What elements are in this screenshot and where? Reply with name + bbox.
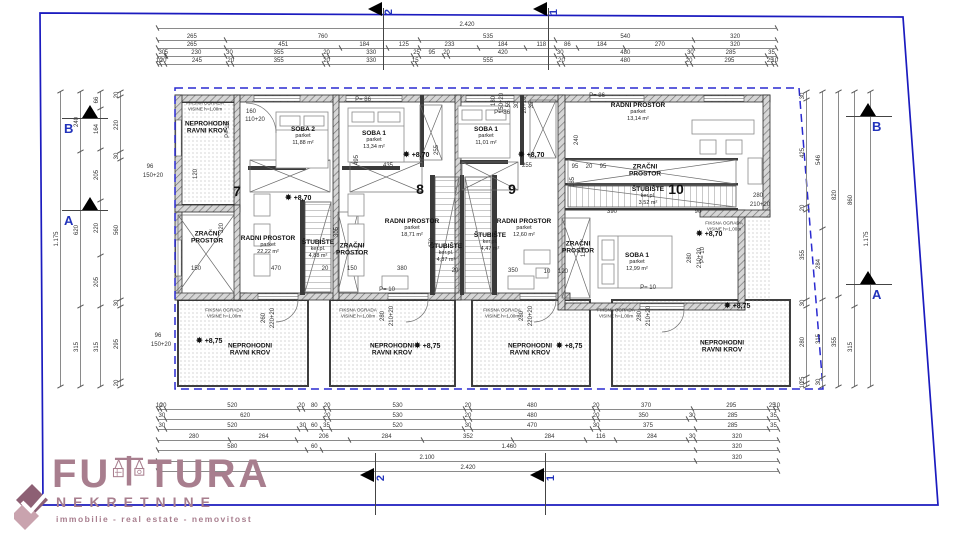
dim-segment: 264 (230, 432, 298, 440)
dim-segment: 95 (420, 48, 444, 56)
dim-segment: 320 (696, 453, 778, 461)
dim-chain-vertical: 54628431530 (822, 92, 831, 386)
dim-label: 355 (274, 58, 284, 64)
room-name: PROSTOR (562, 248, 594, 255)
annotation: 255 (522, 163, 532, 169)
dim-segment: 295 (121, 307, 129, 381)
dim-label: 30 (800, 92, 806, 99)
dim-label: 35 (770, 413, 777, 419)
dim-label: 270 (655, 42, 665, 48)
elevation-mark: ✸+8,75 (556, 341, 582, 350)
dim-segment: 355 (233, 48, 324, 56)
elevation-value: +8,75 (423, 343, 441, 350)
fence-note: FIKSNA OGRADAVISINE h=1,00m (597, 308, 635, 319)
annotation: 210+20 (389, 306, 395, 326)
dim-label: 315 (94, 342, 100, 352)
dim-label: 285 (726, 50, 736, 56)
dim-segment: 20 (121, 381, 129, 386)
section-number: 2 (383, 9, 395, 15)
elevation-value: +8,70 (705, 231, 723, 238)
dim-segment: 285 (696, 411, 769, 419)
annotation: 95 (600, 164, 607, 170)
annotation: P= 86 (494, 110, 510, 116)
dim-label: 60 (311, 423, 318, 429)
dim-segment: 355 (839, 297, 847, 386)
elevation-mark: ✸+8,75 (196, 336, 222, 345)
room-name: NEPROHODNI (370, 343, 414, 350)
annotation: 280 (687, 253, 693, 263)
dim-label: 425 (800, 148, 806, 158)
annotation: 255 (434, 145, 440, 155)
annotation: 20 (586, 164, 593, 170)
dim-segment: 220 (121, 97, 129, 152)
dim-label: 295 (726, 403, 736, 409)
dim-label: 206 (319, 434, 329, 440)
dim-label: 2.100 (419, 455, 434, 461)
dim-segment: 480 (564, 48, 687, 56)
elevation-mark: ✸+8,75 (724, 301, 750, 310)
dim-segment: 315 (101, 307, 109, 386)
dim-label: 370 (641, 403, 651, 409)
room-label: SOBA 2parket11,88 m² (291, 126, 315, 146)
room-label: RADNI PROSTORparket12,60 m² (497, 218, 551, 238)
dim-segment: 285 (694, 48, 767, 56)
elevation-mark: ✸+8,70 (285, 193, 311, 202)
room-detail: 22,22 m² (241, 249, 295, 255)
dim-segment: 125 (388, 40, 420, 48)
dim-segment: 205 (101, 150, 109, 201)
annotation: 180 (491, 96, 497, 106)
dim-segment: 370 (599, 401, 694, 409)
room-detail: 3,52 m² (632, 200, 664, 206)
annotation: 470 (429, 238, 435, 248)
section-line (375, 453, 376, 515)
dim-segment: 116 (586, 432, 616, 440)
dim-segment: 265 (158, 32, 226, 40)
room-name: ŠTUBIŠTE (302, 239, 334, 246)
dim-segment: 265 (158, 40, 226, 48)
dim-label: 2.420 (459, 22, 474, 28)
room-name: ŠTUBIŠTE (632, 186, 664, 193)
letter-marker-arrow-icon (82, 197, 98, 210)
annotation: P= 10 (640, 285, 656, 291)
dim-label: 480 (527, 413, 537, 419)
annotation: 160 (246, 109, 256, 115)
room-name: PROSTOR (336, 250, 368, 257)
dim-label: 352 (463, 434, 473, 440)
room-detail: 13,14 m² (611, 116, 665, 122)
dim-segment: 164 (101, 109, 109, 150)
room-label: NEPROHODNIRAVNI KROV (370, 343, 414, 358)
dim-segment: 451 (226, 40, 341, 48)
room-label: NEPROHODNIRAVNI KROV (185, 121, 229, 136)
dim-label: 184 (359, 42, 369, 48)
dim-label: 560 (114, 225, 120, 235)
annotation: 280 (519, 311, 525, 321)
unit-number: 7 (233, 183, 241, 199)
elevation-star-icon: ✸ (403, 150, 410, 159)
fence-note-line: FIKSNA OGRADA (597, 308, 635, 314)
dim-label: 284 (647, 434, 657, 440)
dim-chain-horizontal: 28026420628435228411628430320 (158, 432, 778, 441)
room-detail: 12,99 m² (625, 266, 649, 272)
dim-label: 265 (187, 42, 197, 48)
dim-segment: 560 (121, 160, 129, 300)
fence-note-line: VISINE h=1,00m (483, 313, 521, 319)
annotation: 30 (514, 102, 520, 109)
dim-label: 295 (724, 58, 734, 64)
dim-label: 30 (114, 152, 120, 159)
room-label: NEPROHODNIRAVNI KROV (508, 343, 552, 358)
letter-marker-line (62, 118, 108, 119)
dim-label: 20 (114, 380, 120, 387)
terrace-upper-left (178, 102, 238, 205)
annotation: 10 (544, 269, 551, 275)
dim-segment: 295 (693, 401, 769, 409)
dim-label: 350 (638, 413, 648, 419)
room-name: ZRAČNI (336, 243, 368, 250)
elevation-star-icon: ✸ (414, 341, 421, 350)
dim-label: 315 (816, 334, 822, 344)
dim-chain-horizontal: 102052020802053020480203702952510 (158, 401, 778, 410)
dim-segment: 35 (767, 48, 776, 56)
annotation: 150+20 (151, 342, 171, 348)
elevation-star-icon: ✸ (696, 229, 703, 238)
dim-segment: 280 (158, 432, 230, 440)
dim-label: 530 (393, 403, 403, 409)
dim-label: 520 (393, 423, 403, 429)
fence-note: FIKSNA OGRADAVISINE h=1,00m (186, 101, 224, 112)
annotation: 35 (529, 102, 535, 109)
room-name: RAVNI KROV (185, 128, 229, 135)
dim-label: 118 (537, 42, 547, 48)
dim-label: 184 (597, 42, 607, 48)
dim-segment: 352 (423, 432, 513, 440)
dim-segment: 820 (839, 92, 847, 297)
annotation: P= 10 (700, 247, 706, 263)
dim-segment: 350 (599, 411, 689, 419)
dim-label: 233 (444, 42, 454, 48)
dim-label: 320 (730, 34, 740, 40)
dim-label: 60 (311, 444, 318, 450)
section-number: 1 (545, 475, 557, 481)
annotation: 240 (574, 135, 580, 145)
room-name: RADNI PROSTOR (611, 102, 665, 109)
dim-chain-vertical: 20220305603029520 (120, 92, 129, 386)
dim-label: 245 (192, 58, 202, 64)
annotation: 150+20 (143, 173, 163, 179)
annotation: 55 (506, 101, 512, 108)
dim-label: 184 (498, 42, 508, 48)
dim-segment: 320 (694, 32, 776, 40)
room-name: NEPROHODNI (508, 343, 552, 350)
room-name: ZRAČNI (629, 164, 661, 171)
dim-segment: 535 (420, 32, 557, 40)
dim-label: 205 (94, 170, 100, 180)
dim-label: 125 (399, 42, 409, 48)
section-arrow-icon (360, 468, 374, 482)
annotation: P= 10 (225, 122, 231, 138)
annotation: 220+20 (528, 306, 534, 326)
room-name: NEPROHODNI (700, 340, 744, 347)
dim-segment: 205 (101, 256, 109, 307)
room-detail: 12,60 m² (497, 232, 551, 238)
fence-note-line: VISINE h=1,00m (597, 313, 635, 319)
annotation: 210+20 (646, 306, 652, 326)
elevation-mark: ✸+8,70 (518, 150, 544, 159)
section-arrow-icon (530, 468, 544, 482)
dim-segment: 355 (233, 56, 324, 64)
annotation: 210+20 (750, 202, 770, 208)
annotation: P= 86 (589, 93, 605, 99)
dim-segment: 184 (341, 40, 388, 48)
dim-segment: 284 (513, 432, 586, 440)
room-name: RADNI PROSTOR (241, 235, 295, 242)
dim-segment: 530 (330, 401, 466, 409)
futura-nekretnine-logo: FU TURA NEKRETNINE immobilie - real esta… (16, 448, 270, 524)
annotation: 260 (261, 313, 267, 323)
dim-label: 1.460 (501, 444, 516, 450)
section-number: 2 (375, 475, 387, 481)
elevation-value: +8,75 (565, 343, 583, 350)
dim-label: 280 (189, 434, 199, 440)
dim-label: 230 (191, 50, 201, 56)
section-arrow-icon (368, 2, 382, 16)
dim-segment: 520 (166, 421, 299, 429)
annotation: P= 10 (379, 287, 395, 293)
elevation-mark: ✸+8,75 (414, 341, 440, 350)
dim-segment: 315 (855, 307, 863, 386)
annotation: 280 (637, 311, 643, 321)
dim-label: 80 (311, 403, 318, 409)
logo-word-left: FU (52, 456, 111, 492)
dim-label: 555 (483, 58, 493, 64)
annotation: 185 (570, 177, 576, 187)
logo-check-icon (14, 484, 60, 536)
room-name: SOBA 2 (291, 126, 315, 133)
section-line (545, 453, 546, 515)
dim-segment: 280 (807, 307, 815, 377)
annotation: 120 (558, 269, 568, 275)
annotation: 380 (397, 266, 407, 272)
dim-segment: 330 (329, 48, 413, 56)
dim-chain-horizontal: 102024520355203301555520480202952510 (158, 56, 776, 65)
dim-segment: 320 (696, 432, 778, 440)
dim-label: 10 (771, 58, 778, 64)
annotation: 495 (354, 155, 360, 165)
dim-label: 284 (544, 434, 554, 440)
dim-label: 760 (318, 34, 328, 40)
fence-note: FIKSNA OGRADAVISINE h=1,00m (339, 308, 377, 319)
dim-label: 480 (620, 50, 630, 56)
letter-marker-arrow-icon (82, 105, 98, 118)
dim-segment: 2.420 (158, 20, 776, 28)
dim-segment: 35 (769, 411, 778, 419)
room-name: SOBA 1 (362, 130, 386, 137)
dim-segment: 1.175 (871, 92, 879, 386)
elevation-value: +8,75 (205, 338, 223, 345)
room-name: RAVNI KROV (370, 350, 414, 357)
annotation: 90 (695, 209, 702, 215)
fence-note-line: VISINE h=1,00m (339, 313, 377, 319)
dim-label: 116 (596, 434, 606, 440)
dim-segment: 86 (556, 40, 578, 48)
annotation: 390 (607, 209, 617, 215)
room-name: RADNI PROSTOR (385, 218, 439, 225)
annotation: 96 (155, 333, 162, 339)
dim-segment: 295 (692, 56, 767, 64)
dim-segment: 284 (616, 432, 689, 440)
annotation: 320 (219, 223, 225, 233)
logo-word-row: FU TURA (52, 448, 270, 492)
dim-chain-vertical: 66164205220205315 (100, 92, 109, 386)
annotation: 435 (383, 163, 393, 169)
room-detail: 4,88 m² (302, 253, 334, 259)
dim-segment: 355 (807, 211, 815, 300)
room-name: PROSTOR (191, 238, 223, 245)
room-name: SOBA 1 (625, 252, 649, 259)
dim-segment: 284 (350, 432, 423, 440)
dim-segment: 320 (694, 40, 776, 48)
dim-label: 315 (74, 342, 80, 352)
room-name: RAVNI KROV (228, 350, 272, 357)
dim-segment: 320 (696, 442, 778, 450)
dim-segment: 555 (417, 56, 559, 64)
letter-marker-line (846, 284, 892, 285)
floor-plan-sheet: FU TURA NEKRETNINE immobilie - real esta… (0, 0, 960, 540)
logo-tagline: immobilie - real estate - nemovitost (56, 514, 270, 524)
room-label: NEPROHODNIRAVNI KROV (700, 340, 744, 355)
dim-label: 320 (732, 455, 742, 461)
annotation: 96 (147, 164, 154, 170)
annotation: 20+10 (522, 97, 528, 114)
room-label: RADNI PROSTORparket22,22 m² (241, 235, 295, 255)
terrace-right-strip (745, 217, 770, 303)
letter-marker-arrow-icon (860, 103, 876, 116)
dim-label: 205 (94, 277, 100, 287)
dim-segment: 760 (226, 32, 420, 40)
dim-label: 280 (800, 337, 806, 347)
elevation-mark: ✸+8,70 (696, 229, 722, 238)
dim-segment: 10 (807, 383, 815, 386)
dim-label: 320 (730, 42, 740, 48)
section-number: 1 (548, 9, 560, 15)
dim-chain-vertical: 240620315 (80, 92, 89, 386)
room-name: ZRAČNI (562, 241, 594, 248)
fence-note-line: FIKSNA OGRADA (186, 101, 224, 107)
dim-label: 355 (800, 250, 806, 260)
elevation-value: +8,70 (294, 195, 312, 202)
dim-label: 10 (800, 381, 806, 388)
elevation-star-icon: ✸ (285, 193, 292, 202)
dim-segment: 315 (823, 300, 831, 379)
dim-label: 10 (773, 403, 780, 409)
annotation: 110+20 (245, 117, 265, 123)
dim-segment: 425 (807, 100, 815, 206)
annotation: 120 (193, 169, 199, 179)
dim-segment: 30 (823, 378, 831, 386)
dim-segment: 520 (331, 421, 464, 429)
letter-marker-line (846, 116, 892, 117)
room-name: NEPROHODNI (228, 343, 272, 350)
dim-segment: 285 (696, 421, 769, 429)
dim-label: 320 (732, 434, 742, 440)
dim-label: 480 (620, 58, 630, 64)
dim-label: 520 (227, 423, 237, 429)
dim-segment: 240 (81, 92, 89, 152)
dim-label: 470 (527, 423, 537, 429)
dim-label: 375 (643, 423, 653, 429)
room-detail: 11,88 m² (291, 140, 315, 146)
dim-segment: 620 (166, 411, 325, 419)
dim-label: 620 (240, 413, 250, 419)
annotation: 305 (334, 227, 340, 237)
fence-note: FIKSNA OGRADAVISINE h=1,00m (205, 308, 243, 319)
dim-segment: 1.460 (322, 442, 696, 450)
dim-label: 164 (94, 124, 100, 134)
annotation: P= 86 (355, 97, 371, 103)
elevation-value: +8,70 (412, 152, 430, 159)
room-detail: 11,01 m² (474, 140, 498, 146)
fence-note-line: VISINE h=1,00m (186, 106, 224, 112)
dim-segment: 270 (625, 40, 694, 48)
dim-chain-vertical: 860315 (854, 92, 863, 386)
dim-label: 264 (259, 434, 269, 440)
room-label: ZRAČNIPROSTOR (562, 241, 594, 256)
dim-label: 315 (848, 342, 854, 352)
dim-segment: 540 (556, 32, 694, 40)
dim-chain-vertical: 1.175 (60, 92, 69, 386)
fence-note-line: VISINE h=1,00m (205, 313, 243, 319)
dim-label: 220 (114, 120, 120, 130)
dim-label: 265 (187, 34, 197, 40)
dim-label: 2.420 (460, 465, 475, 471)
elevation-star-icon: ✸ (518, 150, 525, 159)
room-name: PROSTOR (629, 171, 661, 178)
dim-label: 295 (114, 339, 120, 349)
dim-segment: 375 (600, 421, 696, 429)
dim-segment: 480 (471, 401, 594, 409)
dim-segment: 1.175 (61, 92, 69, 386)
unit-number: 8 (416, 181, 424, 197)
annotation: 470 (271, 266, 281, 272)
letter-marker-line (62, 210, 108, 211)
dim-segment: 206 (297, 432, 350, 440)
dim-segment: 620 (81, 152, 89, 307)
elevation-value: +8,70 (527, 152, 545, 159)
dim-segment: 480 (564, 56, 687, 64)
logo-subtitle: NEKRETNINE (56, 494, 270, 510)
dim-label: 35 (768, 50, 775, 56)
dim-label: 355 (832, 337, 838, 347)
dim-label: 520 (227, 403, 237, 409)
dim-label: 220 (94, 223, 100, 233)
dim-label: 620 (74, 225, 80, 235)
dim-segment: 530 (330, 411, 466, 419)
dim-segment: 315 (81, 307, 89, 386)
dim-label: 86 (564, 42, 571, 48)
annotation: 150 (191, 266, 201, 272)
elevation-star-icon: ✸ (556, 341, 563, 350)
fence-note: FIKSNA OGRADAVISINE h=1,00m (483, 308, 521, 319)
section-line (383, 8, 384, 70)
room-label: SOBA 1parket12,99 m² (625, 252, 649, 272)
room-name: RAVNI KROV (508, 350, 552, 357)
dim-label: 1.175 (54, 231, 60, 246)
dim-segment: 80 (304, 401, 325, 409)
dim-label: 860 (848, 195, 854, 205)
fence-note-line: FIKSNA OGRADA (483, 308, 521, 314)
